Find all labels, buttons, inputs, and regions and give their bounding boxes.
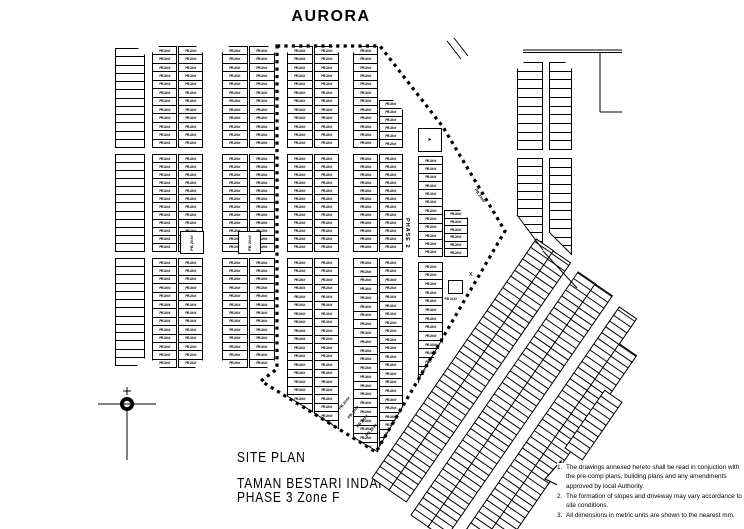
lot-label: PB 2###	[360, 401, 371, 405]
lot-label: PB 2###	[185, 108, 196, 112]
lot-label: PB 2###	[386, 229, 397, 233]
lot-label: PB 2###	[360, 270, 371, 274]
lot: PB 2###	[354, 328, 377, 337]
lot-label: PB 2###	[425, 265, 436, 269]
lot-label: PB 2###	[295, 141, 306, 145]
lot: PB 2###	[315, 243, 338, 251]
lot: PB 2###	[288, 139, 312, 147]
lot: PB 2###	[354, 319, 377, 328]
lot: PB 2###	[288, 377, 312, 386]
lot-block: PB 2###PB 2###PB 2###PB 2###PB 2###PB 2#…	[222, 258, 248, 368]
lot	[449, 281, 462, 293]
lot: PB 2###	[354, 267, 377, 276]
lot: PB 2###	[153, 350, 176, 358]
lot: PB 2###	[354, 71, 377, 79]
lot: PB 2###	[419, 374, 442, 383]
lot-label: PB 2###	[185, 157, 196, 161]
lot: PB 2###	[179, 170, 202, 178]
lot-label: PB 2###	[159, 319, 170, 323]
lot: PB 2###	[153, 162, 176, 170]
lot-label: PB 2###	[159, 165, 170, 169]
lot-label: PB 2###	[159, 277, 170, 281]
lot: PB 2###	[153, 122, 176, 130]
lot-label: PB 2###	[257, 261, 268, 265]
lot: PB 2###	[223, 300, 247, 308]
lot: PB 2###	[315, 122, 338, 130]
lot-label: PB 2###	[257, 91, 268, 95]
lot-label: PB 2###	[257, 189, 268, 193]
lot	[518, 106, 542, 115]
lot-label: PB 2###	[295, 295, 306, 299]
lot-label: PB 2###	[386, 118, 397, 122]
lot-label: PB 2###	[295, 173, 306, 177]
lot-label: PB 2###	[257, 361, 268, 365]
lot: PB 2###	[380, 194, 402, 202]
lot-label: PB 2###	[321, 405, 332, 409]
lot: PB 2###	[380, 386, 402, 395]
lot-label: PB 2###	[321, 189, 332, 193]
lot-label: PB 2###	[321, 380, 332, 384]
lot: PB 2###	[419, 271, 442, 280]
lot	[550, 106, 571, 115]
lot: PB 2###	[250, 122, 274, 130]
lot-label: PB 2###	[185, 82, 196, 86]
notes-block: 1.The drawings annexed hereto shall be r…	[557, 463, 743, 522]
lot-label: PB 2###	[230, 116, 241, 120]
lot-label: PB 2###	[257, 116, 268, 120]
lot: PB 2###	[179, 71, 202, 79]
lot-label: PB 2###	[295, 278, 306, 282]
lot: PB 2###	[250, 47, 274, 54]
lot: PB 2###	[354, 302, 377, 311]
lot-label: PB 2###	[321, 346, 332, 350]
lot: PB 2###	[445, 211, 467, 218]
lot: PB 2###	[315, 211, 338, 219]
lot: PB 2###	[250, 63, 274, 71]
lot: PB 2###	[315, 235, 338, 243]
end-lot-box: PB 2###	[238, 231, 261, 254]
lot: PB 2###	[315, 105, 338, 113]
lot-label: PB 2###	[295, 189, 306, 193]
lot-label: PB 2###	[159, 269, 170, 273]
lot	[518, 140, 542, 149]
lot: PB 2###	[315, 155, 338, 162]
lot-label: PB 2###	[321, 91, 332, 95]
lot-label: PB 2###	[159, 336, 170, 340]
lot: PB 2###	[315, 113, 338, 121]
lot-label: PB 2###	[360, 322, 371, 326]
lot: PB 2###	[179, 130, 202, 138]
lot: PB 2###	[153, 243, 176, 251]
lot: PB 2###	[153, 227, 176, 235]
lot-label: PB 2###	[185, 213, 196, 217]
lot-label: PB 2###	[185, 205, 196, 209]
lot-label: PB 2###	[159, 181, 170, 185]
lot-label: PB 2###	[425, 291, 436, 295]
lot-label: PB 2###	[451, 220, 462, 224]
lot-label: PB 2###	[257, 319, 268, 323]
lot: PB 2###	[179, 186, 202, 194]
lot	[550, 167, 571, 176]
lot: PB 2###	[223, 317, 247, 325]
lot: PB 2###	[315, 202, 338, 210]
lot	[116, 98, 144, 106]
lot	[116, 219, 144, 227]
lot	[518, 208, 542, 216]
lot: PB 2###	[179, 194, 202, 202]
lot: PB 2###	[315, 394, 338, 403]
lot: PB 2###	[380, 275, 402, 284]
lot: PB 2###	[419, 322, 442, 331]
lot-label: PB 2###	[185, 345, 196, 349]
lot: PB 2###	[179, 202, 202, 210]
lot-block: PB 2###PB 2###PB 2###PB 2###PB 2###PB 2#…	[152, 154, 177, 252]
lot	[116, 316, 144, 324]
lot: PB 2###	[223, 359, 247, 367]
lot-label: PB 2###	[425, 234, 436, 238]
lot: PB 2###	[315, 63, 338, 71]
lot-block	[115, 154, 145, 252]
lot: PB 2###	[250, 162, 274, 170]
lot: PB 2###	[380, 131, 402, 139]
lot-label: PB 2###	[295, 99, 306, 103]
lot: PB 2###	[315, 219, 338, 227]
lot: PB 2###	[153, 130, 176, 138]
lot-label: PB 2###	[230, 205, 241, 209]
lot-label: PB 2###	[257, 57, 268, 61]
lot	[518, 114, 542, 123]
lot	[518, 88, 542, 97]
lot-label: PB 2###	[295, 363, 306, 367]
rotated-lot-label: PB 2###	[338, 396, 351, 411]
lot: PB 2###	[179, 155, 202, 162]
lot-label: PB 2###	[257, 328, 268, 332]
lot-label: PB 2###	[257, 82, 268, 86]
lot: PB 2###	[419, 348, 442, 357]
lot: PB 2###	[250, 178, 274, 186]
lot-label: PB 2###	[360, 331, 371, 335]
lot-label: PB 2###	[386, 269, 397, 273]
substation-lot: ▸	[418, 128, 442, 152]
lot: PB 2###	[223, 47, 247, 54]
lot-label: PB 2###	[257, 99, 268, 103]
lot-label: PB 2###	[185, 303, 196, 307]
lot-label: PB 2###	[321, 422, 332, 426]
lot-label: PB 2###	[257, 277, 268, 281]
lot: PB 2###	[179, 80, 202, 88]
lot: PB 2###	[288, 186, 312, 194]
lot-label: PB 2###	[425, 369, 436, 373]
lot-label: PB 2###	[185, 57, 196, 61]
lot-label: PB 2###	[360, 287, 371, 291]
lot-block: PB 2###PB 2###PB 2###PB 2###PB 2###PB 2#…	[444, 210, 468, 257]
lot-label: PB 2###	[321, 286, 332, 290]
lot-label: PB 2###	[360, 108, 371, 112]
lot: PB 2###	[315, 186, 338, 194]
lot-label: PB 2###	[230, 74, 241, 78]
lot-label: PB 2###	[230, 286, 241, 290]
lot: PB 2###	[380, 420, 402, 429]
lot: PB 2###	[354, 80, 377, 88]
lot-label: PB 2###	[386, 261, 397, 265]
lot	[116, 235, 144, 243]
lot-label: PB 2###	[360, 49, 371, 53]
lot-block: PB 2###PB 2###PB 2###PB 2###PB 2###PB 2#…	[249, 46, 275, 148]
note-item: 3.All dimensions in metric units are sho…	[557, 511, 743, 520]
site-plan-label: SITE PLAN	[237, 449, 306, 466]
lot-label: PB 2###	[451, 228, 462, 232]
lot: PB 2###	[288, 243, 312, 251]
lot: PB 2###	[288, 343, 312, 352]
lot-label: PB 2###	[295, 181, 306, 185]
lot-label: PB 2###	[386, 126, 397, 130]
lot: PB 2###	[250, 275, 274, 283]
lot: PB 2###	[354, 235, 377, 243]
lot	[518, 79, 542, 88]
lot: PB 2###	[354, 293, 377, 302]
lot-label: PB 2###	[185, 74, 196, 78]
lot: PB 2###	[354, 311, 377, 320]
lot: PB 2###	[223, 155, 247, 162]
lot-label: PB 2###	[360, 261, 371, 265]
lot-label: PB 2###	[295, 245, 306, 249]
lot-label: PB 2###	[425, 225, 436, 229]
lot-label: PB 2###	[321, 82, 332, 86]
lot: PB 2###	[445, 218, 467, 226]
lot-block	[517, 158, 543, 250]
lot: PB 2###	[380, 259, 402, 267]
lot: PB 2###	[250, 350, 274, 358]
lot: PB 2###	[380, 343, 402, 352]
lot-label: PB 2###	[257, 345, 268, 349]
lot-label: PB 2###	[257, 66, 268, 70]
lot-label: PB 2###	[425, 209, 436, 213]
lot: PB 2###	[250, 130, 274, 138]
lot-label: PB 2###	[230, 189, 241, 193]
lot	[518, 71, 542, 80]
lot: PB 2###	[288, 267, 312, 276]
lot: PB 2###	[288, 194, 312, 202]
lot-label: PB 2###	[360, 357, 371, 361]
lot-label: PB 2###	[185, 311, 196, 315]
lot-label: PB 2###	[230, 261, 241, 265]
lot-label: PB 2###	[185, 319, 196, 323]
lot-label: PB 2###	[159, 221, 170, 225]
lot: PB 2###	[380, 267, 402, 276]
lot: PB 2###	[380, 123, 402, 131]
lot-label: PB 2###	[295, 213, 306, 217]
lot: PB 2###	[223, 88, 247, 96]
lot: PB 2###	[223, 283, 247, 291]
lot-label: PB 2###	[360, 165, 371, 169]
lot-label: PB 2###	[386, 286, 397, 290]
lot	[550, 132, 571, 141]
lot: PB 2###	[250, 300, 274, 308]
lot	[550, 123, 571, 132]
lot	[116, 186, 144, 194]
lot: PB 2###	[250, 155, 274, 162]
lot-label: PB 2###	[360, 375, 371, 379]
lot: PB 2###	[250, 194, 274, 202]
lot-label: PB 2###	[159, 74, 170, 78]
lot: PB 2###	[380, 178, 402, 186]
lot: PB 2###	[179, 334, 202, 342]
lot-label: PB 2###	[386, 398, 397, 402]
lot-label: PB 2###	[230, 277, 241, 281]
lot-label: PB 2###	[321, 329, 332, 333]
lot-label: PB 2###	[159, 66, 170, 70]
lot-block: PB 2###PB 2###PB 2###PB 2###PB 2###PB 2#…	[353, 46, 378, 148]
lot: PB 2###	[153, 275, 176, 283]
lot: PB 2###	[419, 214, 442, 222]
lot	[116, 81, 144, 89]
lot-label: PB 2###	[425, 377, 436, 381]
lot: PB 2###	[223, 266, 247, 274]
lot: PB 2###	[179, 162, 202, 170]
lot: PB 2###	[380, 235, 402, 243]
lot-label: PB 2###	[295, 320, 306, 324]
lot-label: PB 2###	[425, 360, 436, 364]
lot-label: PB 2###	[295, 125, 306, 129]
lot-label: PB 2###	[159, 82, 170, 86]
lot-label: PB 2###	[257, 294, 268, 298]
lot: PB 2###	[419, 206, 442, 214]
lot-label: PB 2###	[159, 141, 170, 145]
lot: PB 2###	[354, 442, 377, 451]
lot: PB 2###	[153, 155, 176, 162]
lot: PB 2###	[315, 80, 338, 88]
lot: PB 2###	[250, 80, 274, 88]
lot: PB 2###	[250, 139, 274, 147]
lot: PB 2###	[315, 259, 338, 267]
lot: PB 2###	[250, 97, 274, 105]
lot: PB 2###	[380, 211, 402, 219]
lot: PB 2###	[354, 363, 377, 372]
lot-label: PB 2###	[257, 181, 268, 185]
lot-label: PB 2###	[159, 361, 170, 365]
lot: PB 2###	[288, 275, 312, 284]
phase-2-road-label: PHASE 2	[404, 218, 410, 249]
lot	[550, 228, 571, 237]
lot-label: PB 2###	[185, 336, 196, 340]
lot: PB 2###	[153, 186, 176, 194]
lot: PB 2###	[419, 297, 442, 306]
lot: PB 2###	[223, 97, 247, 105]
lot: PB 2###	[315, 47, 338, 54]
lot	[518, 224, 542, 232]
lot: PB 2###	[223, 259, 247, 266]
lot-label: PB 2###	[360, 99, 371, 103]
lot: PB 2###	[419, 198, 442, 206]
lot: PB 2###	[315, 130, 338, 138]
lot: ▸	[419, 129, 441, 151]
lot: PB 2###	[354, 113, 377, 121]
lot	[116, 227, 144, 235]
lot-label: PB 2###	[295, 66, 306, 70]
lot	[116, 162, 144, 170]
lot: PB 2###	[419, 340, 442, 349]
lot: PB 2###	[288, 47, 312, 54]
lot-label: PB 2###	[257, 141, 268, 145]
single-lot-label: PB 2###	[445, 296, 457, 301]
lot: PB 2###	[315, 194, 338, 202]
lot: PB 2###	[179, 47, 202, 54]
lot: PB 2###	[380, 361, 402, 370]
lot	[518, 159, 542, 166]
lot-block	[549, 158, 572, 255]
lot: PB 2###	[179, 300, 202, 308]
lot: PB 2###	[288, 309, 312, 318]
lot-label: PB 2###	[230, 165, 241, 169]
lot-block: PB 2###PB 2###PB 2###PB 2###PB 2###PB 2#…	[249, 258, 275, 368]
lot: PB 2###	[354, 105, 377, 113]
site-plan-canvas: AURORA SITE PLAN TAMAN BESTARI INDAH PHA…	[0, 0, 744, 529]
lot-label: PB 2###	[159, 353, 170, 357]
lot: PB 2###	[223, 308, 247, 316]
lot: PB 2###	[179, 259, 202, 266]
lot-label: PB 2###	[185, 99, 196, 103]
lot: PB 2###	[419, 164, 442, 172]
lot: PB 2###	[354, 130, 377, 138]
phase-zone-label: PHASE 3 Zone F	[237, 489, 340, 506]
lot-label: PB 2###	[159, 245, 170, 249]
lot-label: PB 2###	[386, 205, 397, 209]
lot-label: PB 2###	[360, 173, 371, 177]
lot	[550, 237, 571, 246]
lot-label: PB 2###	[295, 237, 306, 241]
lot: PB 2###	[354, 219, 377, 227]
lot-label: PB 2###	[185, 91, 196, 95]
lot-label: PB 2###	[295, 157, 306, 161]
lot-label: PB 2###	[185, 181, 196, 185]
lot-label: PB 2###	[185, 294, 196, 298]
lot-label: PB 2###	[386, 380, 397, 384]
lot-label: PB 2###	[451, 235, 462, 239]
lot	[550, 202, 571, 211]
lot-label: PB 2###	[386, 389, 397, 393]
lot-label: PB 2###	[386, 278, 397, 282]
lot-label: PB 2###	[185, 173, 196, 177]
lot-label: PB 2###	[230, 294, 241, 298]
lot-label: PB 2###	[257, 205, 268, 209]
lot	[550, 159, 571, 167]
lot-label: PB 2###	[360, 197, 371, 201]
lot: PB 2###	[153, 170, 176, 178]
lot-label: PB 2###	[386, 134, 397, 138]
lot-label: PB 2###	[360, 349, 371, 353]
lot: PB 2###	[288, 178, 312, 186]
lot-label: PB 2###	[295, 108, 306, 112]
lot: PB 2###	[380, 116, 402, 124]
lot	[116, 139, 144, 147]
lot-label: PB 2###	[230, 197, 241, 201]
lot: PB 2###	[288, 394, 312, 403]
note-number: 2.	[557, 492, 566, 511]
lot: PB 2###	[153, 97, 176, 105]
lot-label: PB 2###	[321, 371, 332, 375]
lot: PB 2###	[179, 178, 202, 186]
lot	[116, 73, 144, 81]
lot: PB 2###	[315, 335, 338, 344]
lot-label: PB 2###	[386, 415, 397, 419]
lot-label: PB 2###	[257, 125, 268, 129]
lot	[116, 194, 144, 202]
lot: PB 2###	[179, 139, 202, 147]
lot: PB 2###	[419, 239, 442, 247]
note-number: 3.	[557, 511, 566, 520]
lot: PB 2###	[354, 186, 377, 194]
lot	[116, 274, 144, 282]
